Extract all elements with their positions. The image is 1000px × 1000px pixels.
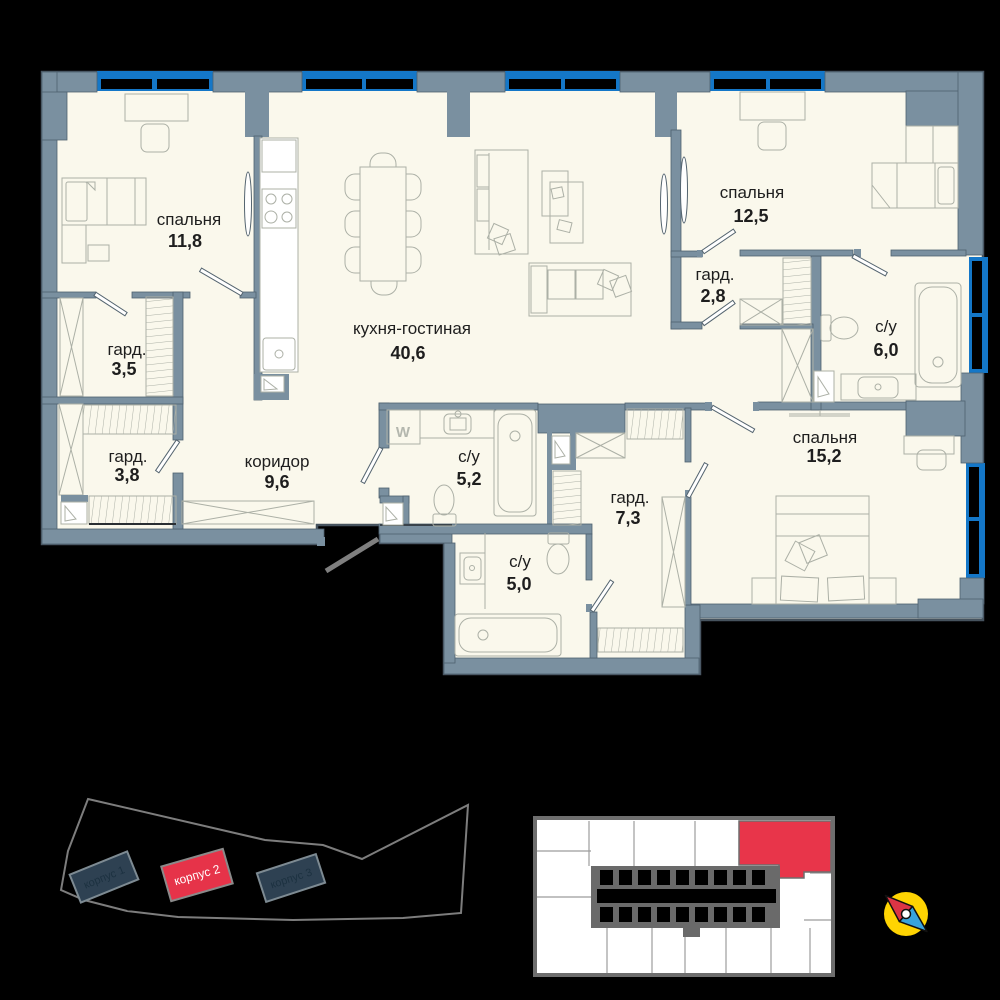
svg-text:5,0: 5,0 xyxy=(506,574,531,594)
svg-text:7,3: 7,3 xyxy=(615,508,640,528)
svg-text:гард.: гард. xyxy=(696,265,735,284)
svg-text:W: W xyxy=(396,424,411,441)
svg-text:кухня-гостиная: кухня-гостиная xyxy=(353,319,471,338)
svg-text:3,5: 3,5 xyxy=(111,359,136,379)
svg-text:9,6: 9,6 xyxy=(264,472,289,492)
svg-text:с/у: с/у xyxy=(458,447,480,466)
svg-text:коридор: коридор xyxy=(245,452,310,471)
svg-text:спальня: спальня xyxy=(793,428,858,447)
svg-text:спальня: спальня xyxy=(157,210,222,229)
svg-text:с/у: с/у xyxy=(509,552,531,571)
svg-text:с/у: с/у xyxy=(875,317,897,336)
svg-text:3,8: 3,8 xyxy=(114,465,139,485)
svg-text:гард.: гард. xyxy=(108,340,147,359)
svg-text:гард.: гард. xyxy=(109,447,148,466)
svg-text:2,8: 2,8 xyxy=(700,286,725,306)
svg-text:15,2: 15,2 xyxy=(806,446,841,466)
svg-text:40,6: 40,6 xyxy=(390,343,425,363)
svg-text:12,5: 12,5 xyxy=(733,206,768,226)
svg-text:6,0: 6,0 xyxy=(873,340,898,360)
svg-text:11,8: 11,8 xyxy=(168,231,202,251)
svg-text:спальня: спальня xyxy=(720,183,785,202)
svg-text:гард.: гард. xyxy=(611,488,650,507)
svg-text:5,2: 5,2 xyxy=(456,469,481,489)
